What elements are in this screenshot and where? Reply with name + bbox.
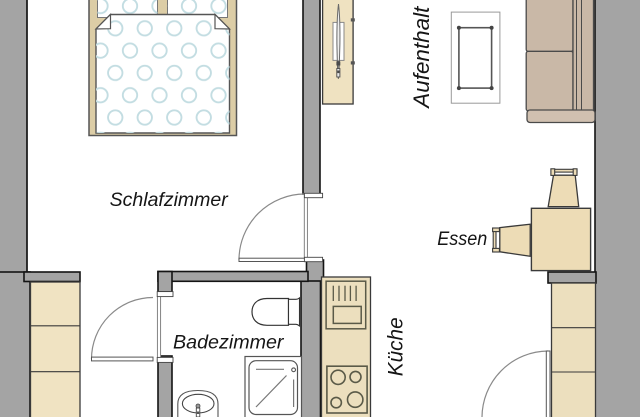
svg-text:Essen: Essen: [437, 229, 487, 250]
svg-text:Badezimmer: Badezimmer: [173, 332, 285, 353]
svg-text:Schlafzimmer: Schlafzimmer: [110, 190, 230, 211]
svg-text:Aufenthalt: Aufenthalt: [409, 6, 434, 110]
svg-text:Küche: Küche: [384, 317, 408, 376]
